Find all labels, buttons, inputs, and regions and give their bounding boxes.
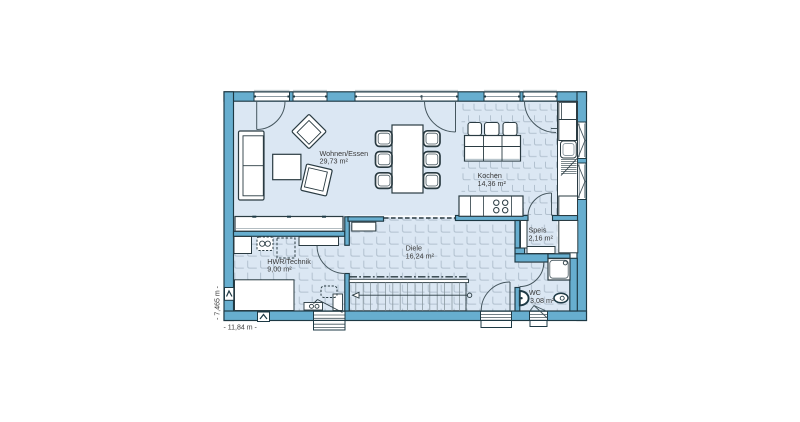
svg-text:2,16 m²: 2,16 m² xyxy=(529,233,554,242)
svg-text:3,08 m²: 3,08 m² xyxy=(530,296,555,305)
svg-text:29,73 m²: 29,73 m² xyxy=(320,157,349,166)
svg-text:- 11,84 m -: - 11,84 m - xyxy=(224,325,258,332)
svg-text:14,36 m²: 14,36 m² xyxy=(478,179,507,188)
svg-text:9,00 m²: 9,00 m² xyxy=(267,265,292,274)
svg-text:- 7,465 m -: - 7,465 m - xyxy=(215,285,222,320)
svg-text:16,24 m²: 16,24 m² xyxy=(406,251,435,260)
